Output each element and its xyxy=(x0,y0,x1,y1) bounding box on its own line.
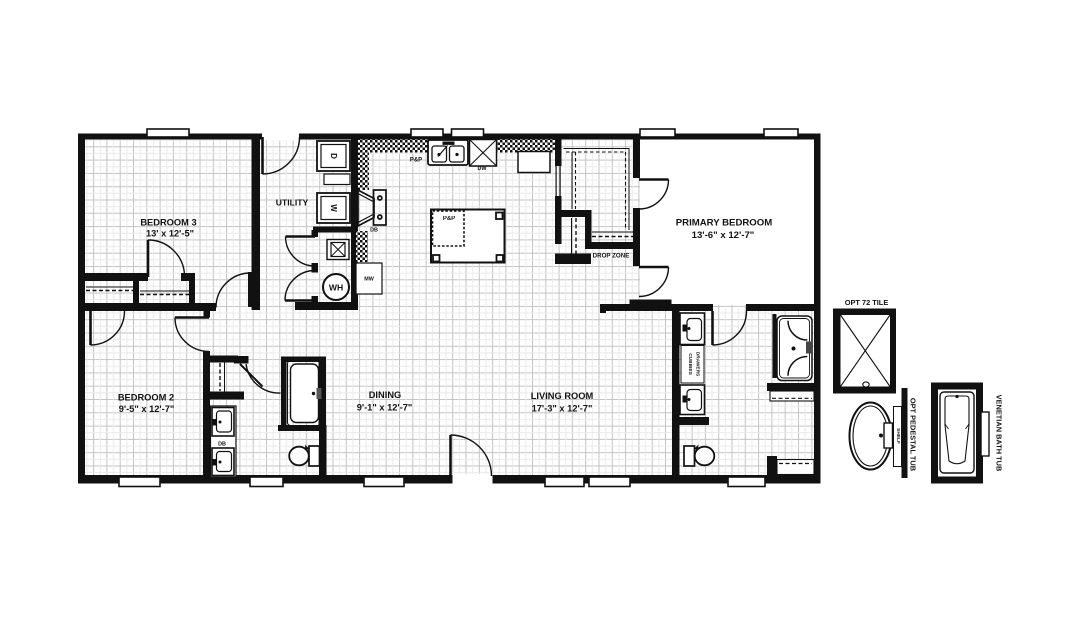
svg-text:P&P: P&P xyxy=(443,216,455,222)
svg-text:OPT 72 TILE: OPT 72 TILE xyxy=(845,298,889,307)
svg-text:BEDROOM 3: BEDROOM 3 xyxy=(140,218,196,228)
svg-text:SHELF: SHELF xyxy=(895,428,901,444)
svg-text:OPT PEDESTAL TUB: OPT PEDESTAL TUB xyxy=(909,398,918,471)
svg-text:9'-5" x 12'-7": 9'-5" x 12'-7" xyxy=(119,404,175,414)
svg-text:DRAWERS: DRAWERS xyxy=(695,352,701,377)
svg-text:9'-1" x 12'-7": 9'-1" x 12'-7" xyxy=(357,403,413,413)
svg-text:DW: DW xyxy=(478,166,488,172)
svg-text:MW: MW xyxy=(364,277,374,283)
svg-text:W: W xyxy=(329,204,338,212)
svg-text:DB: DB xyxy=(218,442,226,448)
svg-text:LIVING ROOM: LIVING ROOM xyxy=(531,391,594,401)
svg-text:CUBBIES: CUBBIES xyxy=(687,353,693,375)
svg-text:UTILITY: UTILITY xyxy=(276,198,309,208)
svg-text:DINING: DINING xyxy=(369,390,402,400)
svg-text:DB: DB xyxy=(370,228,378,234)
svg-text:DROP ZONE: DROP ZONE xyxy=(593,253,630,260)
svg-text:VENETIAN BATH TUB: VENETIAN BATH TUB xyxy=(995,395,1004,472)
svg-text:13'-6" x 12'-7": 13'-6" x 12'-7" xyxy=(692,230,755,241)
svg-text:D: D xyxy=(329,153,338,159)
svg-text:13' x 12'-5": 13' x 12'-5" xyxy=(146,229,194,239)
svg-text:17'-3" x 12'-7": 17'-3" x 12'-7" xyxy=(532,404,593,414)
svg-text:P&P: P&P xyxy=(410,158,422,164)
svg-text:WH: WH xyxy=(329,283,343,293)
svg-text:BEDROOM 2: BEDROOM 2 xyxy=(118,393,174,403)
svg-text:PRIMARY BEDROOM: PRIMARY BEDROOM xyxy=(676,218,772,229)
